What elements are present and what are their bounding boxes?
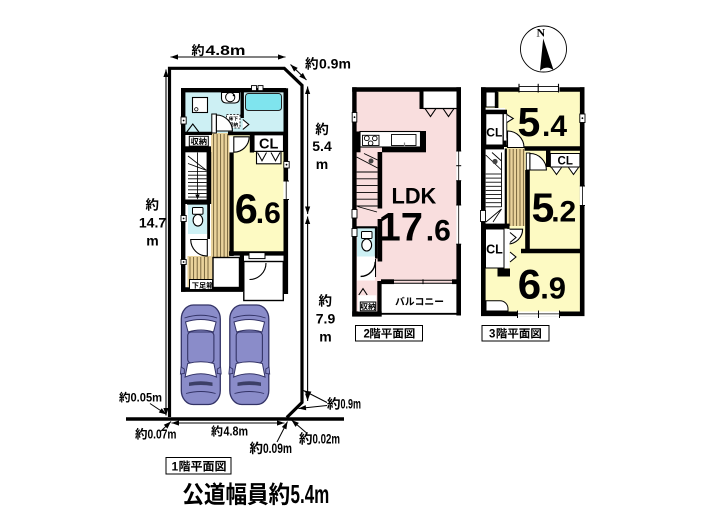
svg-text:CL: CL <box>486 126 502 140</box>
svg-text:5: 5 <box>518 99 541 145</box>
svg-text:17: 17 <box>379 206 424 250</box>
svg-text:0.09m: 0.09m <box>263 440 292 456</box>
svg-text:3: 3 <box>489 329 495 341</box>
svg-text:N: N <box>536 26 545 40</box>
svg-text:6: 6 <box>518 260 541 307</box>
svg-text:14.7: 14.7 <box>139 215 166 231</box>
svg-text:1: 1 <box>172 460 179 474</box>
svg-text:7.9: 7.9 <box>316 311 336 327</box>
svg-text:.4: .4 <box>542 110 567 143</box>
svg-text:.2: .2 <box>551 195 576 228</box>
svg-text:2: 2 <box>364 329 370 341</box>
svg-text:CL: CL <box>486 243 503 257</box>
svg-text:0.07m: 0.07m <box>148 427 177 442</box>
svg-text:0.9m: 0.9m <box>319 56 351 72</box>
svg-text:.9: .9 <box>540 270 566 305</box>
svg-text:CL: CL <box>259 137 278 153</box>
svg-text:6: 6 <box>235 185 258 232</box>
svg-text:m: m <box>146 233 158 249</box>
svg-text:0.02m: 0.02m <box>313 431 341 447</box>
svg-text:5.4m: 5.4m <box>291 479 330 509</box>
svg-text:.6: .6 <box>426 215 451 248</box>
svg-text:m: m <box>319 329 331 345</box>
svg-text:0.9m: 0.9m <box>341 396 362 412</box>
svg-text:0.05m: 0.05m <box>131 391 163 405</box>
svg-text:5.4: 5.4 <box>312 138 332 154</box>
svg-text:4.8m: 4.8m <box>206 42 246 58</box>
svg-text:m: m <box>316 156 328 172</box>
svg-text:.6: .6 <box>256 197 281 230</box>
svg-text:4.8m: 4.8m <box>224 425 249 439</box>
svg-text:CL: CL <box>558 155 573 167</box>
